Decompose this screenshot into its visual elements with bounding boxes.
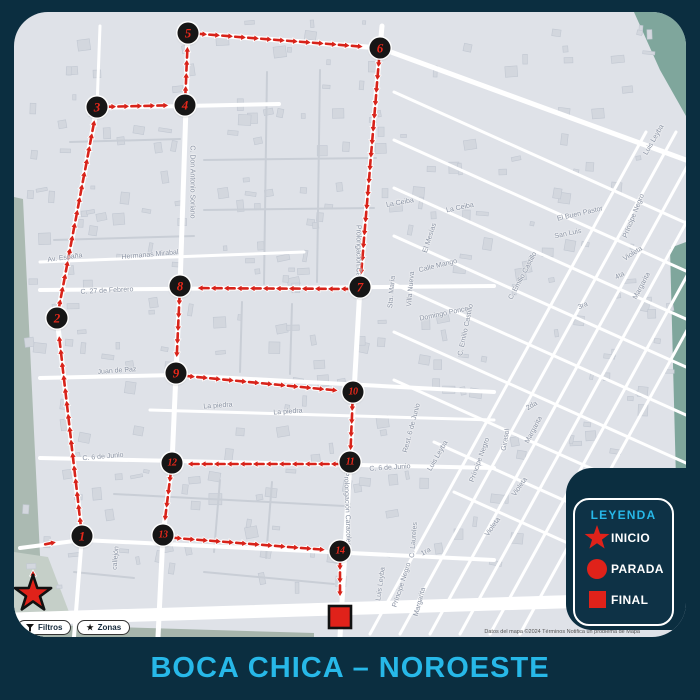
stop-marker-4[interactable]: 4 bbox=[175, 95, 196, 116]
stop-marker-8[interactable]: 8 bbox=[170, 276, 191, 297]
stop-marker-14[interactable]: 14 bbox=[330, 541, 351, 562]
filter-icon bbox=[26, 624, 34, 632]
start-star-icon bbox=[584, 525, 610, 551]
stop-marker-9[interactable]: 9 bbox=[166, 363, 187, 384]
legend-item-parada: PARADA bbox=[575, 553, 672, 584]
stop-marker-5[interactable]: 5 bbox=[178, 23, 199, 44]
stop-marker-13[interactable]: 13 bbox=[153, 525, 174, 546]
stop-marker-3[interactable]: 3 bbox=[87, 97, 108, 118]
street-label: C. Don Antonio Soriano bbox=[189, 145, 196, 218]
map-controls: Filtros ★ Zonas bbox=[17, 620, 130, 635]
stop-marker-1[interactable]: 1 bbox=[72, 526, 93, 547]
star-icon: ★ bbox=[86, 624, 93, 632]
stop-marker-6[interactable]: 6 bbox=[370, 38, 391, 59]
stop-marker-11[interactable]: 11 bbox=[340, 452, 361, 473]
zones-button-label: Zonas bbox=[98, 623, 122, 632]
legend-title: LEYENDA bbox=[575, 508, 672, 522]
title-bar: BOCA CHICA – NOROESTE bbox=[0, 637, 700, 700]
zones-button[interactable]: ★ Zonas bbox=[77, 620, 130, 635]
legend-label-inicio: INICIO bbox=[611, 531, 650, 545]
filters-button-label: Filtros bbox=[38, 623, 62, 632]
page-title: BOCA CHICA – NOROESTE bbox=[150, 652, 549, 685]
stop-circle-icon bbox=[587, 559, 607, 579]
filters-button[interactable]: Filtros bbox=[17, 620, 71, 635]
stop-marker-12[interactable]: 12 bbox=[162, 453, 183, 474]
legend-label-parada: PARADA bbox=[611, 562, 664, 576]
route-map[interactable]: LEYENDA INICIO PARADA FINAL Filtros ★ Zo… bbox=[14, 12, 686, 637]
legend-item-inicio: INICIO bbox=[575, 522, 672, 553]
stop-marker-10[interactable]: 10 bbox=[343, 382, 364, 403]
legend: LEYENDA INICIO PARADA FINAL bbox=[573, 498, 674, 626]
end-marker[interactable] bbox=[329, 606, 351, 628]
legend-label-final: FINAL bbox=[611, 593, 648, 607]
end-square-icon bbox=[589, 591, 606, 608]
stop-marker-7[interactable]: 7 bbox=[350, 277, 371, 298]
stop-marker-2[interactable]: 2 bbox=[47, 308, 68, 329]
route-path bbox=[30, 30, 383, 597]
legend-item-final: FINAL bbox=[575, 584, 672, 615]
